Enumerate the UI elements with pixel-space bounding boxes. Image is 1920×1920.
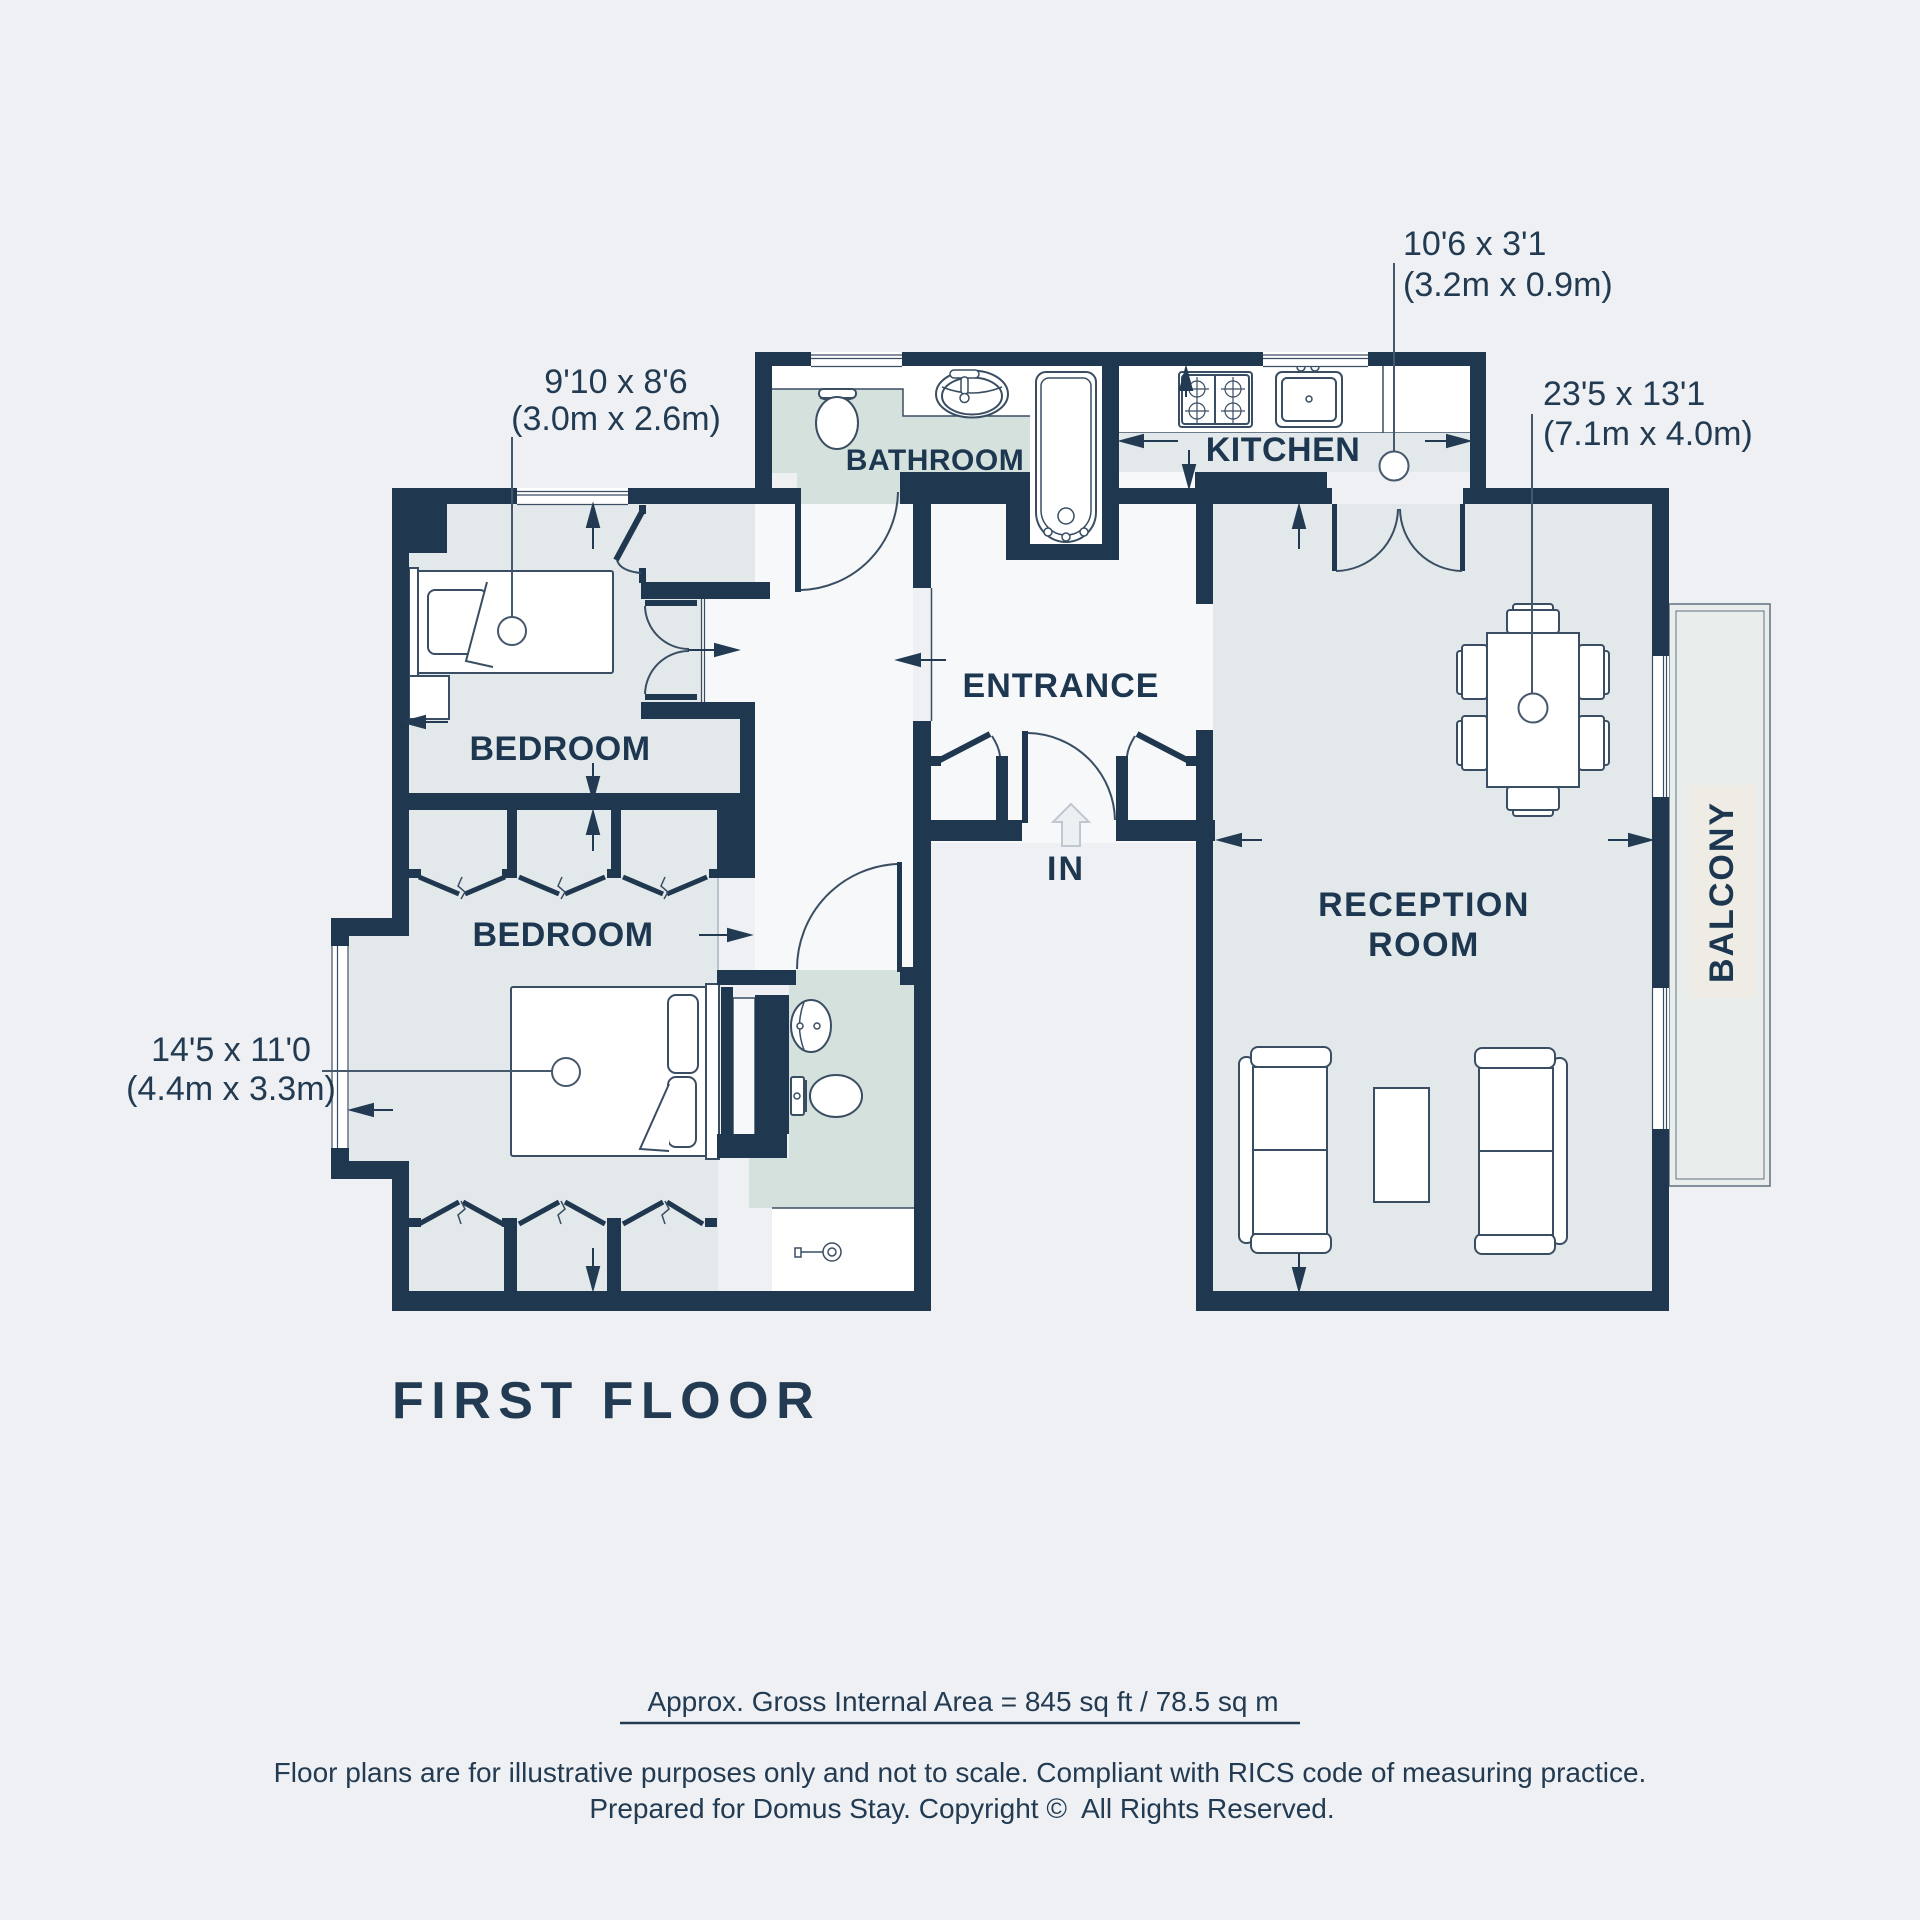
- svg-text:9'10 x 8'6: 9'10 x 8'6: [544, 363, 687, 401]
- svg-text:23'5 x 13'1: 23'5 x 13'1: [1543, 375, 1705, 413]
- svg-text:10'6 x 3'1: 10'6 x 3'1: [1403, 225, 1546, 263]
- svg-text:FIRST FLOOR: FIRST FLOOR: [392, 1372, 821, 1430]
- svg-text:(3.2m x 0.9m): (3.2m x 0.9m): [1403, 266, 1613, 304]
- svg-text:Approx. Gross Internal Area =: Approx. Gross Internal Area = 845 sq ft …: [647, 1686, 1278, 1717]
- svg-text:BEDROOM: BEDROOM: [472, 916, 653, 954]
- svg-text:(3.0m x 2.6m): (3.0m x 2.6m): [511, 400, 721, 438]
- svg-text:KITCHEN: KITCHEN: [1206, 431, 1361, 469]
- svg-text:Prepared for Domus Stay. Copyr: Prepared for Domus Stay. Copyright © All…: [589, 1793, 1334, 1824]
- svg-text:BALCONY: BALCONY: [1703, 801, 1741, 983]
- svg-text:IN: IN: [1047, 850, 1085, 888]
- svg-text:14'5 x 11'0: 14'5 x 11'0: [151, 1031, 311, 1069]
- svg-text:Floor plans are for illustrati: Floor plans are for illustrative purpose…: [274, 1757, 1647, 1788]
- svg-text:ENTRANCE: ENTRANCE: [963, 667, 1160, 705]
- svg-text:BATHROOM: BATHROOM: [846, 444, 1024, 477]
- svg-text:(4.4m x 3.3m): (4.4m x 3.3m): [126, 1070, 336, 1108]
- svg-text:ROOM: ROOM: [1368, 926, 1480, 964]
- svg-text:RECEPTION: RECEPTION: [1318, 886, 1530, 924]
- svg-text:(7.1m x 4.0m): (7.1m x 4.0m): [1543, 415, 1753, 453]
- svg-text:BEDROOM: BEDROOM: [469, 730, 650, 768]
